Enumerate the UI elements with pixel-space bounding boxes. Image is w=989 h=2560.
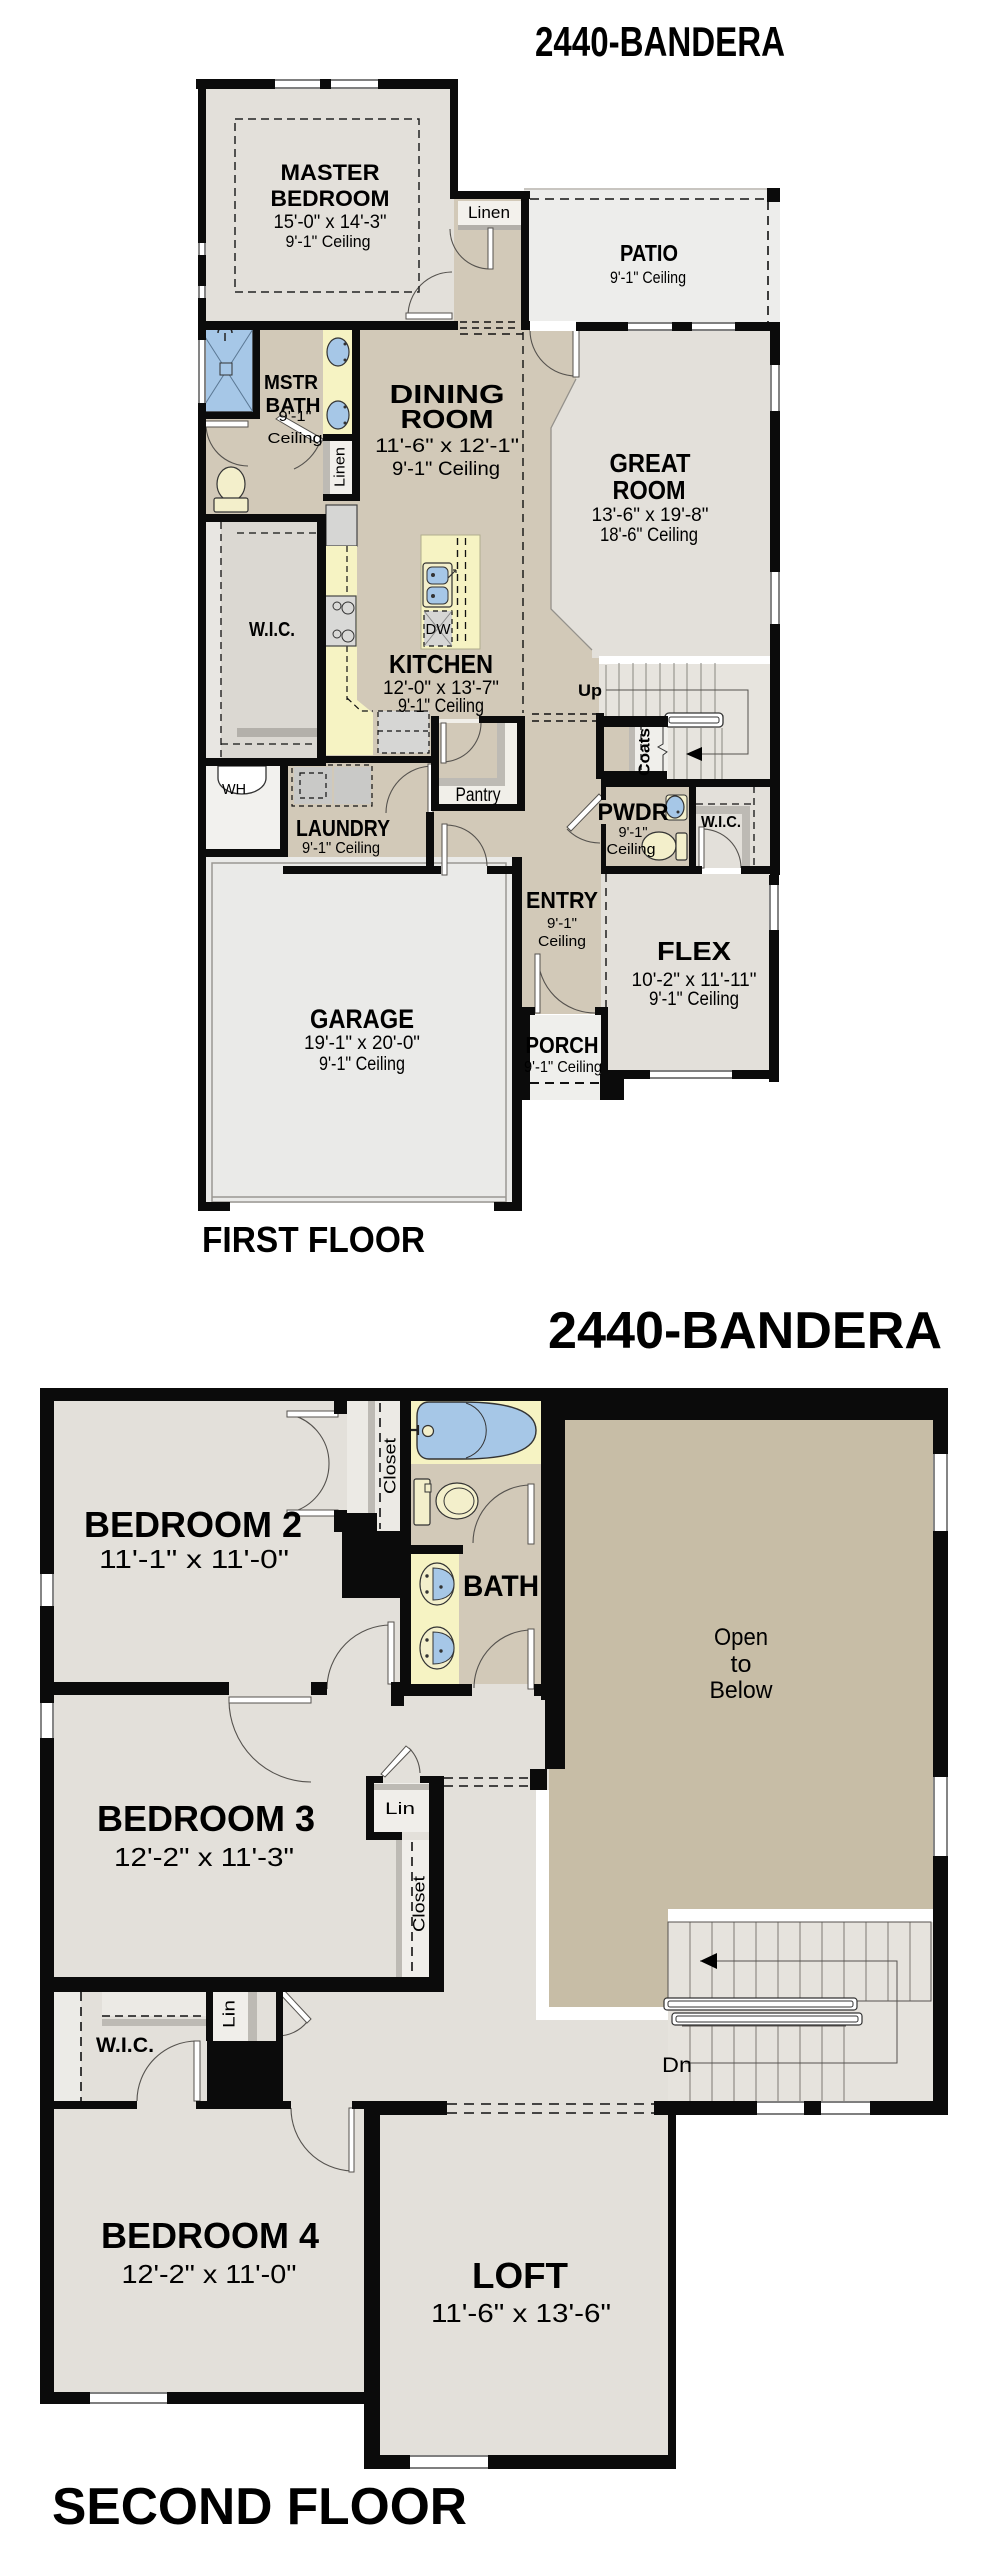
svg-text:MSTR: MSTR xyxy=(264,372,319,394)
svg-text:Open: Open xyxy=(714,1624,768,1651)
svg-text:BEDROOM: BEDROOM xyxy=(271,186,390,211)
svg-text:10'-2" x 11'-11": 10'-2" x 11'-11" xyxy=(632,970,757,991)
svg-text:19'-1" x 20'-0": 19'-1" x 20'-0" xyxy=(304,1033,420,1054)
svg-text:Linen: Linen xyxy=(468,203,510,222)
svg-text:MASTER: MASTER xyxy=(281,160,380,185)
svg-text:W.I.C.: W.I.C. xyxy=(249,619,295,641)
svg-text:Below: Below xyxy=(710,1677,774,1704)
svg-text:9'-1" Ceiling: 9'-1" Ceiling xyxy=(610,268,686,287)
svg-text:FLEX: FLEX xyxy=(657,936,732,966)
svg-text:W.I.C.: W.I.C. xyxy=(701,814,741,831)
svg-text:Ceiling: Ceiling xyxy=(538,933,586,950)
svg-text:9'-1" Ceiling: 9'-1" Ceiling xyxy=(286,232,371,251)
svg-text:KITCHEN: KITCHEN xyxy=(389,649,493,679)
svg-text:11'-1" x 11'-0": 11'-1" x 11'-0" xyxy=(99,1544,289,1574)
svg-text:11'-6" x 12'-1": 11'-6" x 12'-1" xyxy=(375,436,519,457)
svg-text:18'-6" Ceiling: 18'-6" Ceiling xyxy=(600,525,698,546)
svg-text:Pantry: Pantry xyxy=(456,785,501,806)
svg-text:FIRST FLOOR: FIRST FLOOR xyxy=(202,1219,425,1260)
svg-text:9'-1" Ceiling: 9'-1" Ceiling xyxy=(649,989,739,1010)
svg-text:9'-1": 9'-1" xyxy=(619,824,648,841)
svg-text:9'-1" Ceiling: 9'-1" Ceiling xyxy=(398,696,484,717)
svg-text:ROOM: ROOM xyxy=(401,404,494,434)
svg-text:Up: Up xyxy=(578,681,602,700)
svg-text:Closet: Closet xyxy=(381,1438,400,1494)
svg-text:SECOND FLOOR: SECOND FLOOR xyxy=(52,2478,467,2536)
svg-text:11'-6" x 13'-6": 11'-6" x 13'-6" xyxy=(431,2298,611,2328)
svg-text:GARAGE: GARAGE xyxy=(310,1004,414,1034)
svg-text:PWDR: PWDR xyxy=(598,799,669,826)
svg-text:Ceiling: Ceiling xyxy=(607,841,656,858)
svg-text:Lin: Lin xyxy=(385,1799,415,1818)
svg-text:Ceiling: Ceiling xyxy=(268,430,323,447)
svg-text:13'-6" x 19'-8": 13'-6" x 19'-8" xyxy=(592,505,709,526)
svg-text:9'-1": 9'-1" xyxy=(279,408,312,425)
svg-text:BEDROOM 4: BEDROOM 4 xyxy=(101,2215,319,2256)
svg-text:9'-1" Ceiling: 9'-1" Ceiling xyxy=(302,840,380,857)
svg-text:Linen: Linen xyxy=(332,447,349,487)
svg-text:Closet: Closet xyxy=(410,1876,429,1932)
svg-text:Lin: Lin xyxy=(220,2000,239,2028)
svg-text:LOFT: LOFT xyxy=(472,2255,568,2296)
svg-text:BEDROOM 2: BEDROOM 2 xyxy=(84,1504,302,1545)
svg-text:WH: WH xyxy=(222,781,246,798)
svg-text:W.I.C.: W.I.C. xyxy=(96,2034,154,2057)
svg-text:12'-2" x 11'-3": 12'-2" x 11'-3" xyxy=(114,1842,294,1872)
svg-text:Coats: Coats xyxy=(637,728,654,776)
svg-text:DW: DW xyxy=(426,621,452,638)
svg-text:2440-BANDERA: 2440-BANDERA xyxy=(548,1302,942,1360)
svg-text:9'-1" Ceiling: 9'-1" Ceiling xyxy=(524,1059,602,1076)
svg-text:Dn: Dn xyxy=(662,2054,692,2077)
svg-text:9'-1": 9'-1" xyxy=(547,915,577,932)
svg-text:PATIO: PATIO xyxy=(620,240,678,266)
svg-text:LAUNDRY: LAUNDRY xyxy=(296,815,390,841)
svg-text:12'-2" x 11'-0": 12'-2" x 11'-0" xyxy=(122,2259,297,2289)
svg-text:9'-1" Ceiling: 9'-1" Ceiling xyxy=(319,1054,405,1075)
svg-text:GREAT: GREAT xyxy=(610,448,691,478)
svg-text:ENTRY: ENTRY xyxy=(526,887,598,913)
svg-text:15'-0" x 14'-3": 15'-0" x 14'-3" xyxy=(274,212,387,233)
svg-text:to: to xyxy=(731,1651,752,1678)
svg-text:9'-1" Ceiling: 9'-1" Ceiling xyxy=(392,459,500,480)
svg-text:PORCH: PORCH xyxy=(526,1032,599,1058)
svg-text:BEDROOM 3: BEDROOM 3 xyxy=(97,1798,315,1839)
svg-text:ROOM: ROOM xyxy=(613,475,686,505)
svg-text:BATH: BATH xyxy=(463,1570,539,1603)
svg-text:2440-BANDERA: 2440-BANDERA xyxy=(535,18,785,65)
